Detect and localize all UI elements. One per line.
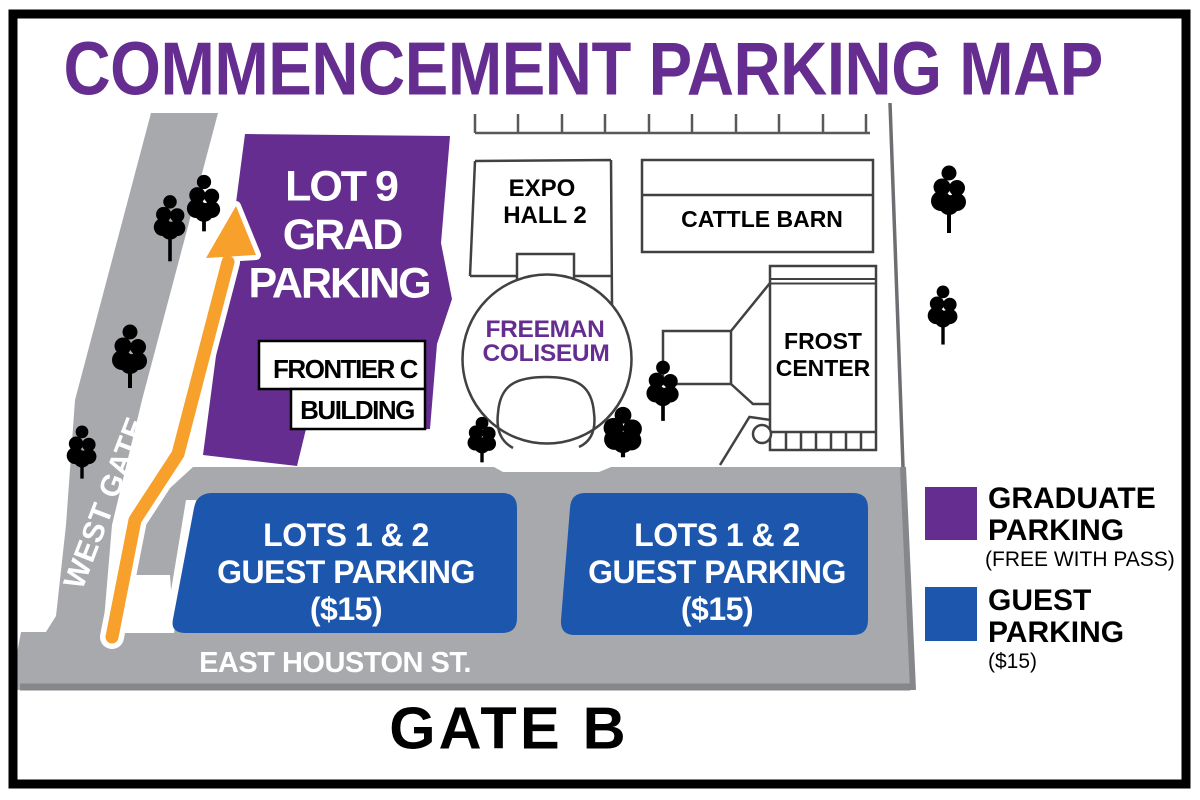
svg-text:EAST HOUSTON ST.: EAST HOUSTON ST. (199, 647, 471, 679)
svg-text:FREEMAN: FREEMAN (485, 316, 604, 343)
svg-text:HALL 2: HALL 2 (503, 202, 587, 229)
svg-text:LOT 9: LOT 9 (285, 163, 398, 211)
svg-text:GUEST: GUEST (988, 584, 1091, 617)
svg-text:GUEST PARKING: GUEST PARKING (588, 554, 846, 590)
svg-text:($15): ($15) (988, 650, 1037, 673)
svg-text:COLISEUM: COLISEUM (483, 340, 610, 367)
svg-text:PARKING: PARKING (248, 260, 429, 308)
svg-text:CENTER: CENTER (776, 355, 871, 381)
svg-text:($15): ($15) (681, 591, 753, 627)
svg-text:GUEST PARKING: GUEST PARKING (217, 554, 475, 590)
svg-text:(FREE WITH PASS): (FREE WITH PASS) (985, 548, 1175, 571)
svg-text:GRAD: GRAD (283, 211, 403, 259)
svg-text:BUILDING: BUILDING (300, 395, 414, 425)
svg-text:GRADUATE: GRADUATE (988, 482, 1156, 515)
svg-text:LOTS 1 & 2: LOTS 1 & 2 (634, 517, 800, 553)
svg-text:LOTS 1 & 2: LOTS 1 & 2 (263, 517, 429, 553)
svg-text:FRONTIER C: FRONTIER C (273, 354, 419, 384)
svg-text:GATE B: GATE B (389, 695, 629, 762)
svg-text:PARKING: PARKING (988, 616, 1124, 649)
svg-text:EXPO: EXPO (509, 175, 576, 202)
svg-text:FROST: FROST (784, 328, 862, 354)
svg-text:($15): ($15) (310, 591, 382, 627)
svg-text:COMMENCEMENT PARKING MAP: COMMENCEMENT PARKING MAP (64, 26, 1103, 110)
svg-text:CATTLE BARN: CATTLE BARN (681, 206, 843, 232)
svg-text:PARKING: PARKING (988, 514, 1124, 547)
